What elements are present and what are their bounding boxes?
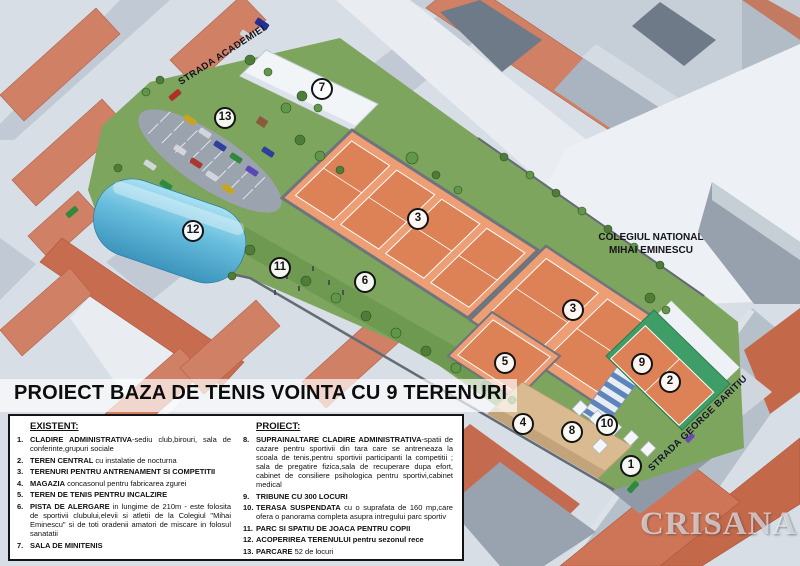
college-label: COLEGIUL NATIONAL MIHAI EMINESCU [570, 232, 732, 257]
legend-item-keyword: TEREN DE TENIS PENTRU INCALZIRE [30, 490, 167, 499]
legend-item-keyword: TERASA SUSPENDATA [256, 503, 341, 512]
legend-item-keyword: SUPRAINALTARE CLADIRE ADMINISTRATIVA [256, 435, 421, 444]
legend-item-number: 11. [243, 524, 256, 533]
legend-item-number: 9. [243, 492, 256, 501]
legend-item-number: 6. [17, 502, 30, 538]
legend-item-keyword: PARC SI SPATIU DE JOACA PENTRU COPII [256, 524, 410, 533]
legend-item-text: TRIBUNE CU 300 LOCURI [256, 492, 455, 501]
college-label-line2: MIHAI EMINESCU [570, 245, 732, 258]
legend-item-text: TEREN CENTRAL cu instalatie de nocturna [30, 456, 233, 465]
legend-box: EXISTENT: 1. CLADIRE ADMINISTRATIVA-sedi… [8, 414, 464, 561]
legend-item-keyword: PARCARE [256, 547, 293, 556]
legend-item: 4. MAGAZIA concasonul pentru fabricarea … [17, 479, 233, 488]
legend-item-keyword: TEREN CENTRAL [30, 456, 93, 465]
legend-header-proiect: PROIECT: [256, 421, 455, 432]
legend-item-keyword: TERENURI PENTRU ANTRENAMENT SI COMPETITI… [30, 467, 215, 476]
legend-item-text: SUPRAINALTARE CLADIRE ADMINISTRATIVA-spa… [256, 435, 455, 489]
legend-item-number: 3. [17, 467, 30, 476]
legend-item-keyword: MAGAZIA [30, 479, 65, 488]
legend-item-text: TERENURI PENTRU ANTRENAMENT SI COMPETITI… [30, 467, 233, 476]
map-marker: 7 [311, 78, 333, 100]
legend-item-number: 8. [243, 435, 256, 489]
map-marker: 12 [182, 220, 204, 242]
legend-item-number: 10. [243, 503, 256, 521]
legend-item: 8. SUPRAINALTARE CLADIRE ADMINISTRATIVA-… [243, 435, 455, 489]
legend-item: 12. ACOPERIREA TERENULUI pentru sezonul … [243, 535, 455, 544]
map-marker: 1 [620, 455, 642, 477]
legend-item-number: 12. [243, 535, 256, 544]
legend-item-description: concasonul pentru fabricarea zgurei [65, 479, 186, 488]
legend-item-description: 52 de locuri [293, 547, 334, 556]
legend-item-keyword: ACOPERIREA TERENULUI pentru sezonul rece [256, 535, 424, 544]
legend-item-number: 1. [17, 435, 30, 453]
legend-item-text: PISTA DE ALERGARE in lungime de 210m - e… [30, 502, 233, 538]
legend-item-number: 13. [243, 547, 256, 556]
legend-item-text: MAGAZIA concasonul pentru fabricarea zgu… [30, 479, 233, 488]
legend-item: 9. TRIBUNE CU 300 LOCURI [243, 492, 455, 501]
map-marker: 5 [494, 352, 516, 374]
crisana-watermark: CRISANA [640, 506, 797, 543]
map-marker: 11 [269, 257, 291, 279]
college-label-line1: COLEGIUL NATIONAL [570, 232, 732, 245]
map-marker: 3 [407, 208, 429, 230]
legend-item-keyword: CLADIRE ADMINISTRATIVA [30, 435, 132, 444]
legend-item: 1. CLADIRE ADMINISTRATIVA-sediu club,bir… [17, 435, 233, 453]
legend-header-existent: EXISTENT: [30, 421, 233, 432]
map-marker: 13 [214, 107, 236, 129]
legend-item-text: CLADIRE ADMINISTRATIVA-sediu club,birour… [30, 435, 233, 453]
site-plan-poster: STRADA ACADEMIEI STRADA GEORGE BARITIU C… [0, 0, 800, 566]
legend-item-description: -spatii de cazare pentru sportivii din t… [256, 435, 453, 489]
legend-item-text: PARCARE 52 de locuri [256, 547, 455, 556]
legend-item-text: SALA DE MINITENIS [30, 541, 233, 550]
legend-item: 5. TEREN DE TENIS PENTRU INCALZIRE [17, 490, 233, 499]
map-marker: 2 [659, 371, 681, 393]
map-marker: 6 [354, 271, 376, 293]
map-marker: 3 [562, 299, 584, 321]
legend-item-number: 7. [17, 541, 30, 550]
legend-item: 3. TERENURI PENTRU ANTRENAMENT SI COMPET… [17, 467, 233, 476]
legend-column-proiect: PROIECT: 8. SUPRAINALTARE CLADIRE ADMINI… [243, 421, 455, 557]
legend-item-number: 2. [17, 456, 30, 465]
legend-item-text: PARC SI SPATIU DE JOACA PENTRU COPII [256, 524, 455, 533]
legend-item-keyword: SALA DE MINITENIS [30, 541, 103, 550]
legend-item: 11. PARC SI SPATIU DE JOACA PENTRU COPII [243, 524, 455, 533]
legend-item: 10. TERASA SUSPENDATA cu o suprafata de … [243, 503, 455, 521]
map-marker: 9 [631, 353, 653, 375]
legend-column-existent: EXISTENT: 1. CLADIRE ADMINISTRATIVA-sedi… [17, 421, 233, 557]
legend-item-text: ACOPERIREA TERENULUI pentru sezonul rece [256, 535, 455, 544]
legend-item: 7. SALA DE MINITENIS [17, 541, 233, 550]
legend-item-keyword: TRIBUNE CU 300 LOCURI [256, 492, 348, 501]
map-marker: 8 [561, 421, 583, 443]
legend-item: 13. PARCARE 52 de locuri [243, 547, 455, 556]
legend-item: 2. TEREN CENTRAL cu instalatie de noctur… [17, 456, 233, 465]
legend-item-number: 4. [17, 479, 30, 488]
page-title: PROIECT BAZA DE TENIS VOINTA CU 9 TERENU… [14, 382, 507, 405]
map-marker: 10 [596, 414, 618, 436]
map-marker: 4 [512, 413, 534, 435]
legend-item-number: 5. [17, 490, 30, 499]
legend-item-text: TERASA SUSPENDATA cu o suprafata de 160 … [256, 503, 455, 521]
legend-item-description: cu instalatie de nocturna [93, 456, 176, 465]
legend-item-text: TEREN DE TENIS PENTRU INCALZIRE [30, 490, 233, 499]
legend-item-keyword: PISTA DE ALERGARE [30, 502, 110, 511]
legend-item: 6. PISTA DE ALERGARE in lungime de 210m … [17, 502, 233, 538]
